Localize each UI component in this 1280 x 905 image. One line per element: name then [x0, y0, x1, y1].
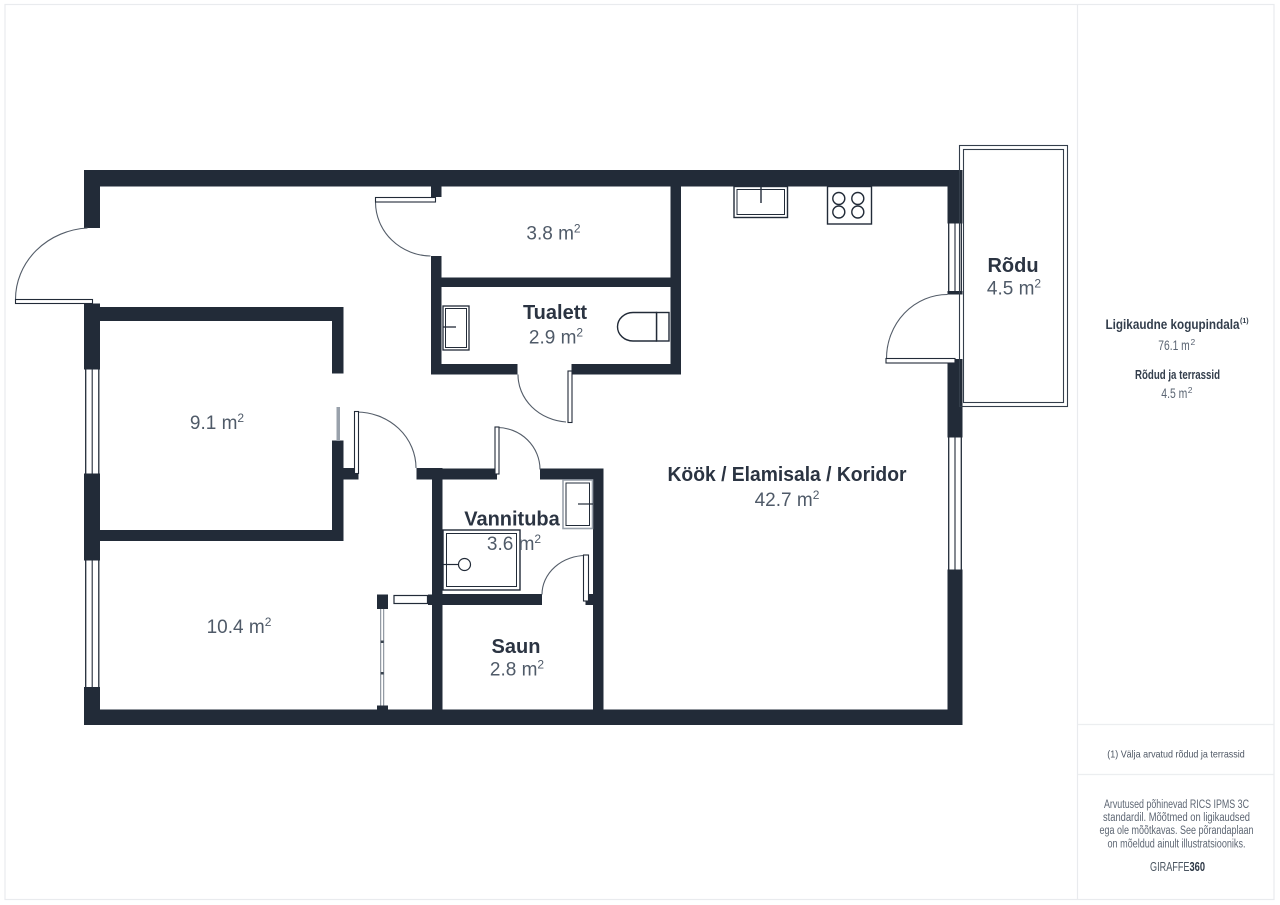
svg-text:(1) Välja arvatud rõdud ja ter: (1) Välja arvatud rõdud ja terrassid: [1107, 749, 1245, 761]
svg-text:Ligikaudne kogupindala: Ligikaudne kogupindala: [1106, 317, 1240, 332]
svg-text:2: 2: [1191, 337, 1196, 347]
svg-text:42.7 m2: 42.7 m2: [755, 488, 820, 511]
svg-text:Köök / Elamisala / Koridor: Köök / Elamisala / Koridor: [668, 464, 907, 486]
svg-text:(1): (1): [1240, 318, 1249, 325]
svg-text:3.6 m2: 3.6 m2: [487, 532, 542, 555]
svg-text:360: 360: [1190, 860, 1206, 874]
svg-text:Rõdu: Rõdu: [987, 255, 1038, 277]
svg-text:ega ole mõõtkavas. See põranda: ega ole mõõtkavas. See põrandaplaan: [1100, 825, 1254, 837]
svg-text:Tualett: Tualett: [523, 302, 587, 324]
svg-text:10.4 m2: 10.4 m2: [207, 615, 272, 638]
svg-text:76.1 m: 76.1 m: [1158, 338, 1190, 353]
svg-text:Arvutused põhinevad RICS IPMS: Arvutused põhinevad RICS IPMS 3C: [1104, 799, 1249, 811]
svg-text:Saun: Saun: [492, 636, 541, 658]
svg-text:9.1 m2: 9.1 m2: [190, 411, 245, 434]
svg-text:2.8 m2: 2.8 m2: [490, 658, 545, 681]
svg-text:2: 2: [1188, 385, 1193, 395]
svg-text:on mõeldud ainult illustratsio: on mõeldud ainult illustratsiooniks.: [1108, 838, 1246, 850]
svg-text:4.5 m: 4.5 m: [1161, 386, 1187, 401]
svg-text:3.8 m2: 3.8 m2: [526, 222, 581, 245]
svg-text:Rõdud ja terrassid: Rõdud ja terrassid: [1135, 368, 1220, 382]
svg-text:4.5 m2: 4.5 m2: [987, 277, 1042, 300]
svg-text:standardil. Mõõtmed on ligikau: standardil. Mõõtmed on ligikaudsed: [1103, 812, 1250, 824]
svg-text:Vannituba: Vannituba: [464, 509, 560, 531]
svg-text:2.9 m2: 2.9 m2: [529, 326, 584, 349]
svg-text:GIRAFFE: GIRAFFE: [1150, 860, 1190, 874]
